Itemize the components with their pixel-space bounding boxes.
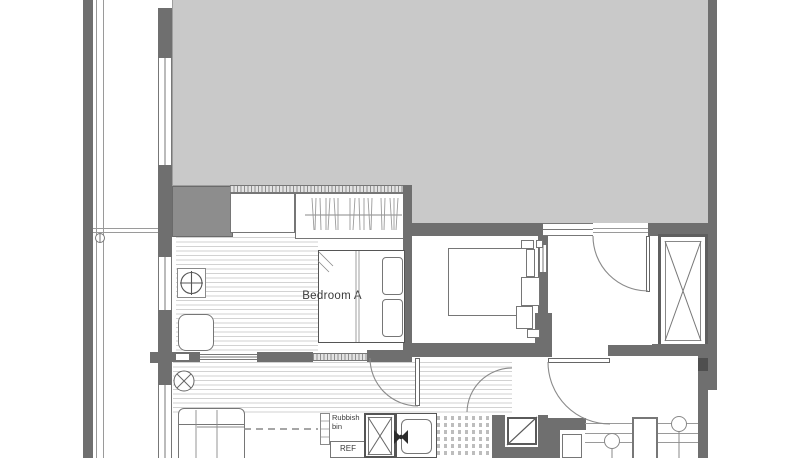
appliance-cabinet-inner [368, 417, 392, 455]
wall-segment [403, 223, 543, 236]
wall-segment [538, 415, 548, 458]
cabinet [230, 193, 295, 233]
storage-block [172, 186, 233, 237]
label-rubbish-bin: Rubbish bin [332, 413, 368, 432]
balcony-rail-line [103, 0, 104, 458]
wall-segment [698, 356, 708, 458]
wall-segment [608, 345, 658, 356]
ceiling-fixture-box [177, 268, 206, 298]
door-threshold-line [593, 232, 650, 233]
slab-edge-line [93, 228, 158, 229]
armchair-icon [178, 314, 214, 351]
wall-segment [652, 344, 710, 356]
floor-plan: Bedroom A Rubbish bin REF [0, 0, 800, 458]
bedside-unit [521, 240, 534, 249]
door-swing-arc-icon [548, 362, 610, 424]
wall-segment [158, 165, 172, 257]
tile-floor [437, 416, 497, 458]
window [539, 245, 547, 272]
window [158, 58, 172, 165]
window-band [230, 185, 405, 193]
wall-segment [158, 310, 172, 385]
bedside-unit [521, 277, 540, 306]
wall-segment [257, 352, 313, 362]
window [543, 223, 593, 236]
window [158, 257, 172, 310]
window [200, 354, 257, 360]
wall-segment [150, 352, 172, 363]
wall-segment [158, 8, 172, 58]
pillow-icon [382, 257, 403, 295]
bedside-unit [527, 329, 540, 338]
door-leaf-icon [415, 358, 420, 406]
bedside-unit [516, 306, 533, 329]
wall-segment [403, 343, 552, 357]
pillow-icon [382, 299, 403, 337]
door-frame [632, 417, 658, 458]
shaft-closet-inner [665, 241, 701, 341]
fixture-box [562, 434, 582, 458]
door-jamb-gap [176, 354, 189, 360]
wall-segment [535, 313, 552, 343]
sink-icon [401, 419, 432, 454]
bedside-unit [536, 240, 543, 248]
wall-segment [492, 415, 505, 458]
wall-segment [83, 0, 93, 458]
door-swing-arc-icon [593, 236, 648, 291]
room-label-bedroom-a: Bedroom A [287, 290, 377, 302]
wardrobe-icon [295, 193, 405, 239]
wall-marker [698, 358, 708, 371]
door-leaf-icon [646, 236, 650, 292]
adjacent-unit-area [172, 0, 711, 186]
door-threshold-line [593, 228, 650, 229]
wall-segment [548, 418, 560, 458]
door-leaf-icon [548, 358, 610, 363]
duct-shaft [507, 417, 537, 445]
adjacent-unit-area [405, 185, 710, 223]
label-refrigerator: REF [330, 444, 366, 453]
sliding-screen [313, 353, 367, 361]
slab-edge-line [93, 232, 158, 233]
balcony-rail-line [96, 0, 97, 458]
wall-segment [708, 356, 717, 390]
bedside-unit [526, 249, 535, 277]
window [158, 385, 172, 458]
wall-segment [708, 0, 717, 356]
sofa-icon [178, 424, 245, 458]
rubbish-bin-cabinet [320, 413, 330, 445]
